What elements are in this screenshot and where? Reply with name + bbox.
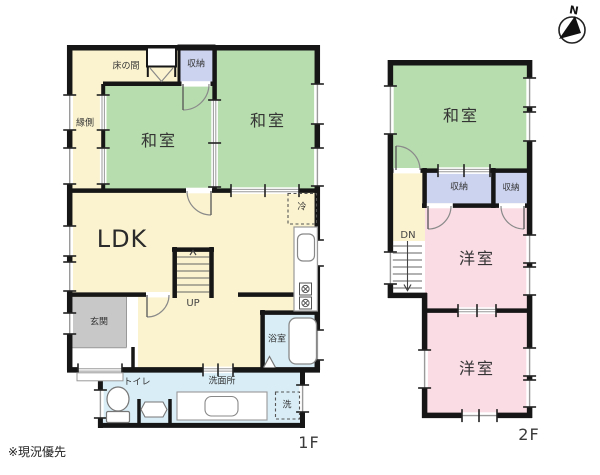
floorplan-image: N 縁側 床の間 収納 和室 和室 LDK 冷 玄関 UP 浴室 トイレ 洗面所…	[0, 0, 600, 475]
label-youshitsu-top: 洋室	[459, 251, 495, 267]
label-washitsu-right: 和室	[250, 113, 286, 129]
label-washitsu-left: 和室	[141, 133, 177, 149]
label-storage-2f-right: 収納	[502, 184, 519, 193]
label-ldk: LDK	[97, 227, 148, 251]
bathtub	[289, 318, 317, 364]
toilet-fixture	[107, 387, 130, 423]
label-stairs-down: DN	[400, 231, 415, 241]
label-washroom: 洗面所	[208, 378, 235, 387]
label-floor-2f: 2F	[518, 427, 539, 443]
floorplan-drawing: N	[0, 0, 600, 475]
compass-north-icon: N	[559, 3, 585, 43]
note-text: ※現況優先	[8, 443, 66, 460]
compass-north-label: N	[568, 3, 579, 17]
label-fridge: 冷	[297, 204, 306, 213]
label-washer: 洗	[282, 402, 291, 411]
hand-basin	[141, 402, 167, 417]
label-stairs-up: UP	[186, 299, 199, 309]
vanity-sink	[205, 397, 238, 417]
entrance-step	[77, 373, 123, 381]
label-storage-2f-left: 収納	[450, 184, 468, 193]
label-genkan: 玄関	[90, 319, 108, 328]
label-tokonoma: 床の間	[112, 63, 139, 72]
label-toilet: トイレ	[123, 379, 150, 388]
label-floor-1f: 1F	[298, 435, 319, 451]
label-storage-1f: 収納	[187, 61, 205, 70]
kitchen-sink	[298, 234, 315, 261]
label-washitsu-2f: 和室	[443, 108, 479, 124]
label-youshitsu-bottom: 洋室	[459, 361, 495, 377]
label-bath: 浴室	[268, 336, 286, 345]
label-engawa: 縁側	[76, 120, 94, 129]
